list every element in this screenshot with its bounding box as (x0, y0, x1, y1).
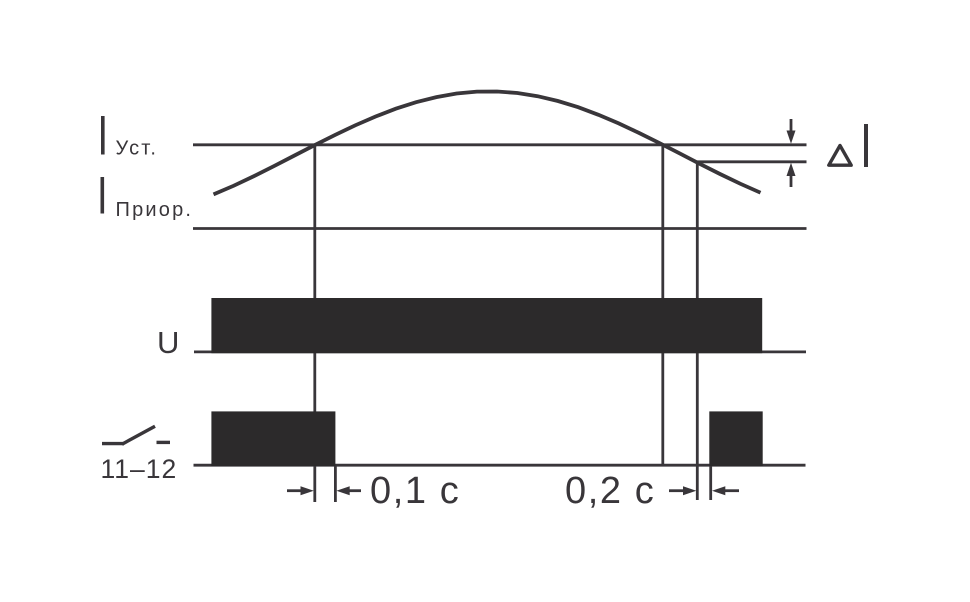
svg-text:Уст.: Уст. (116, 138, 159, 160)
svg-text:0,2 с: 0,2 с (565, 470, 655, 512)
svg-text:11–12: 11–12 (101, 454, 178, 484)
svg-text:Приор.: Приор. (116, 199, 194, 221)
svg-text:0,1 с: 0,1 с (370, 470, 460, 512)
svg-text:U: U (157, 325, 179, 360)
